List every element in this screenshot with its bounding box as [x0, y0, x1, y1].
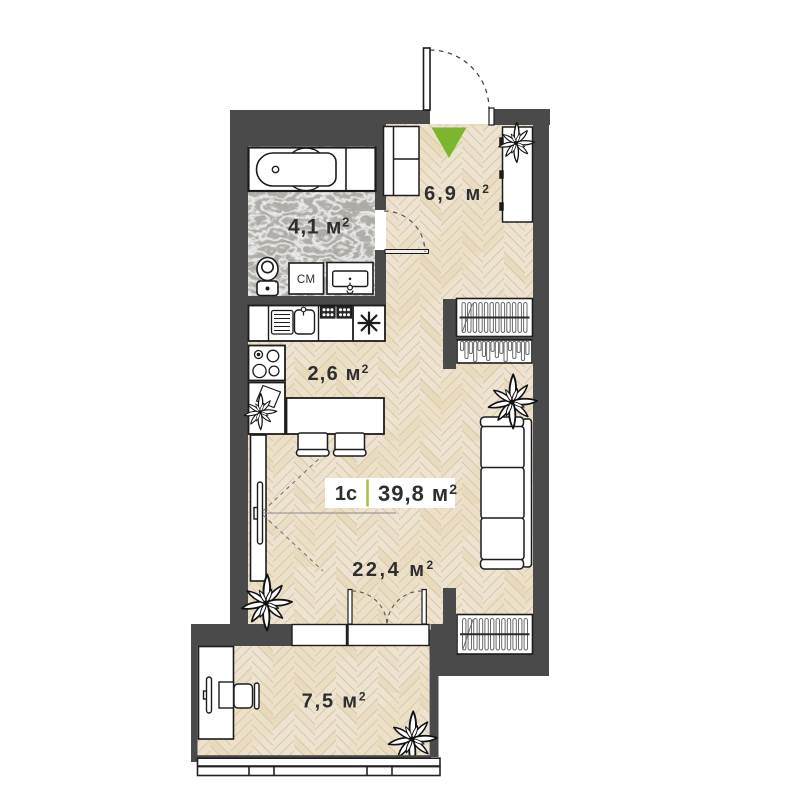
- svg-text:6,9 м2: 6,9 м2: [424, 182, 491, 205]
- svg-text:СМ: СМ: [297, 274, 316, 286]
- svg-text:22,4 м2: 22,4 м2: [352, 558, 435, 581]
- svg-text:7,5 м2: 7,5 м2: [302, 690, 368, 713]
- svg-text:4,1 м2: 4,1 м2: [288, 215, 350, 239]
- svg-text:2,6 м2: 2,6 м2: [307, 362, 369, 385]
- svg-text:39,8 м2: 39,8 м2: [378, 481, 458, 506]
- svg-text:1с: 1с: [335, 483, 357, 505]
